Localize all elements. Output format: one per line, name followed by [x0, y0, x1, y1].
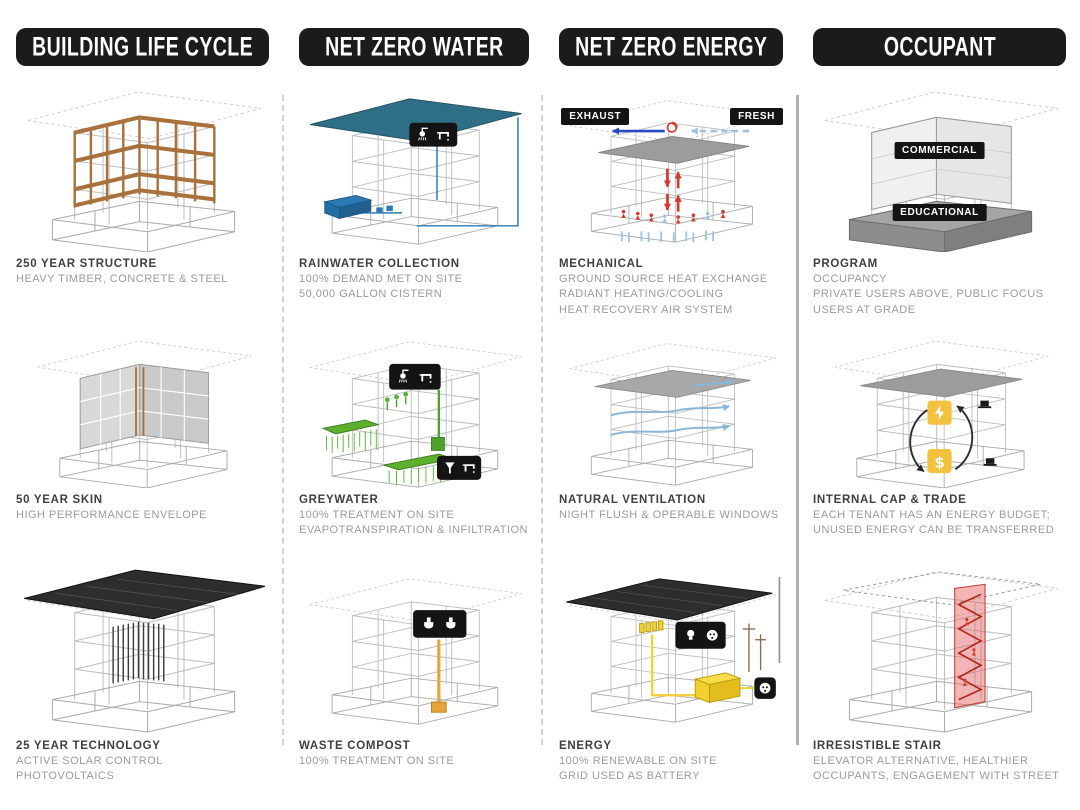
column-header-net-zero-water: NET ZERO WATER: [299, 28, 529, 66]
cell-caption: PROGRAM OCCUPANCY PRIVATE USERS ABOVE, P…: [813, 252, 1066, 330]
column-occupant: OCCUPANT: [797, 0, 1080, 810]
cell-line: RADIANT HEATING/COOLING: [559, 287, 783, 302]
illus-waste-compost: [299, 558, 529, 734]
fixture-icon-panel: [409, 123, 457, 147]
fresh-label: FRESH: [730, 108, 783, 125]
roof-plane: [595, 370, 751, 397]
cell-caption: 50 YEAR SKIN HIGH PERFORMANCE ENVELOPE: [16, 488, 269, 558]
cell-line: GROUND SOURCE HEAT EXCHANGE: [559, 272, 783, 287]
cell-line: GRID USED AS BATTERY: [559, 769, 783, 784]
column-building-life-cycle: BUILDING LIFE CYCLE: [0, 0, 283, 810]
stair-shaft: [955, 584, 985, 707]
illus-mechanical: EXHAUST FRESH: [559, 80, 783, 252]
cell-line: OCCUPANCY: [813, 272, 1066, 287]
cell-caption: GREYWATER 100% TREATMENT ON SITE EVAPOTR…: [299, 488, 529, 558]
infographic-page: BUILDING LIFE CYCLE: [0, 0, 1080, 810]
cell-title: 250 YEAR STRUCTURE: [16, 258, 269, 270]
diagram-grid: BUILDING LIFE CYCLE: [0, 0, 1080, 810]
cell-caption: RAINWATER COLLECTION 100% DEMAND MET ON …: [299, 252, 529, 330]
storage-tank: [695, 673, 740, 703]
cell-title: 50 YEAR SKIN: [16, 494, 269, 506]
cell-title: ENERGY: [559, 740, 783, 752]
column-header-label: NET ZERO WATER: [325, 31, 503, 62]
cell-line: USERS AT GRADE: [813, 303, 1066, 318]
illus-cap-and-trade: $: [813, 330, 1066, 488]
illus-energy: [559, 558, 783, 734]
solar-canopy: [24, 570, 265, 619]
illus-timber-structure: [16, 80, 269, 252]
laptop-icon: [978, 401, 992, 408]
cell-line: ELEVATOR ALTERNATIVE, HEALTHIER: [813, 754, 1066, 769]
illus-irresistible-stair: [813, 558, 1066, 734]
pv-canopy: [566, 579, 772, 620]
cell-title: IRRESISTIBLE STAIR: [813, 740, 1066, 752]
illus-greywater: [299, 330, 529, 488]
column-header-building-life-cycle: BUILDING LIFE CYCLE: [16, 28, 269, 66]
cell-line: UNUSED ENERGY CAN BE TRANSFERRED: [813, 523, 1066, 538]
cell-line: PRIVATE USERS ABOVE, PUBLIC FOCUS: [813, 287, 1066, 302]
cell-line: NIGHT FLUSH & OPERABLE WINDOWS: [559, 508, 783, 523]
illus-program: COMMERCIAL EDUCATIONAL: [813, 80, 1066, 252]
greywater-system: [323, 390, 454, 486]
cell-line: HEAVY TIMBER, CONCRETE & STEEL: [16, 272, 269, 287]
column-header-net-zero-energy: NET ZERO ENERGY: [559, 28, 783, 66]
illus-natural-ventilation: [559, 330, 783, 488]
cell-line: 100% TREATMENT ON SITE: [299, 754, 529, 769]
cell-title: PROGRAM: [813, 258, 1066, 270]
cell-title: INTERNAL CAP & TRADE: [813, 494, 1066, 506]
cell-caption: MECHANICAL GROUND SOURCE HEAT EXCHANGE R…: [559, 252, 783, 330]
load-icon-panel: [675, 622, 725, 649]
drain-icon-panel: [437, 456, 481, 480]
cell-caption: IRRESISTIBLE STAIR ELEVATOR ALTERNATIVE,…: [813, 734, 1066, 806]
planters: [385, 392, 408, 410]
commercial-label: COMMERCIAL: [894, 142, 985, 159]
cell-title: WASTE COMPOST: [299, 740, 529, 752]
cell-line: 100% DEMAND MET ON SITE: [299, 272, 529, 287]
commercial-mass: [872, 117, 1012, 209]
outlet-icon: [707, 630, 718, 641]
energy-token: [927, 401, 951, 425]
solar-louvers: [113, 622, 164, 684]
column-header-label: NET ZERO ENERGY: [575, 31, 767, 62]
cell-line: HIGH PERFORMANCE ENVELOPE: [16, 508, 269, 523]
illus-high-performance-envelope: [16, 330, 269, 488]
cell-line: 50,000 GALLON CISTERN: [299, 287, 529, 302]
compost-bin: [431, 702, 446, 712]
cell-caption: NATURAL VENTILATION NIGHT FLUSH & OPERAB…: [559, 488, 783, 558]
column-header-label: BUILDING LIFE CYCLE: [32, 31, 253, 62]
cell-caption: 250 YEAR STRUCTURE HEAVY TIMBER, CONCRET…: [16, 252, 269, 330]
illus-solar-technology: [16, 558, 269, 734]
cell-title: 25 YEAR TECHNOLOGY: [16, 740, 269, 752]
column-net-zero-energy: NET ZERO ENERGY: [543, 0, 797, 810]
illus-rainwater-collection: [299, 80, 529, 252]
cell-line: ACTIVE SOLAR CONTROL: [16, 754, 269, 769]
column-header-occupant: OCCUPANT: [813, 28, 1066, 66]
cell-line: HEAT RECOVERY AIR SYSTEM: [559, 303, 783, 318]
dollar-token: $: [927, 449, 951, 473]
column-header-label: OCCUPANT: [883, 31, 995, 62]
grid-outlet-icon: [754, 677, 776, 699]
fixture-icon-panel: [389, 364, 441, 390]
cell-line: EACH TENANT HAS AN ENERGY BUDGET;: [813, 508, 1066, 523]
cell-line: PHOTOVOLTAICS: [16, 769, 269, 784]
battery-bank: [640, 621, 663, 633]
cell-title: GREYWATER: [299, 494, 529, 506]
column-net-zero-water: NET ZERO WATER: [283, 0, 543, 810]
radiant-arrows: [667, 169, 678, 212]
exhaust-label: EXHAUST: [561, 108, 629, 125]
cell-line: OCCUPANTS, ENGAGEMENT WITH STREET: [813, 769, 1066, 784]
cell-title: RAINWATER COLLECTION: [299, 258, 529, 270]
cell-title: MECHANICAL: [559, 258, 783, 270]
cistern: [325, 195, 393, 218]
cell-line: 100% TREATMENT ON SITE: [299, 508, 529, 523]
cell-caption: INTERNAL CAP & TRADE EACH TENANT HAS AN …: [813, 488, 1066, 558]
cell-title: NATURAL VENTILATION: [559, 494, 783, 506]
utility-poles: [743, 624, 766, 672]
educational-label: EDUCATIONAL: [892, 204, 987, 221]
cell-caption: WASTE COMPOST 100% TREATMENT ON SITE: [299, 734, 529, 806]
cell-caption: 25 YEAR TECHNOLOGY ACTIVE SOLAR CONTROL …: [16, 734, 269, 806]
air-handler-icon: [667, 123, 676, 132]
cell-line: 100% RENEWABLE ON SITE: [559, 754, 783, 769]
toilet-icon-panel: [413, 610, 466, 638]
dollar-icon: $: [934, 454, 944, 472]
cell-caption: ENERGY 100% RENEWABLE ON SITE GRID USED …: [559, 734, 783, 806]
cell-line: EVAPOTRANSPIRATION & INFILTRATION: [299, 523, 529, 538]
facade-panels: [80, 364, 208, 449]
roof-plane: [861, 369, 1023, 397]
